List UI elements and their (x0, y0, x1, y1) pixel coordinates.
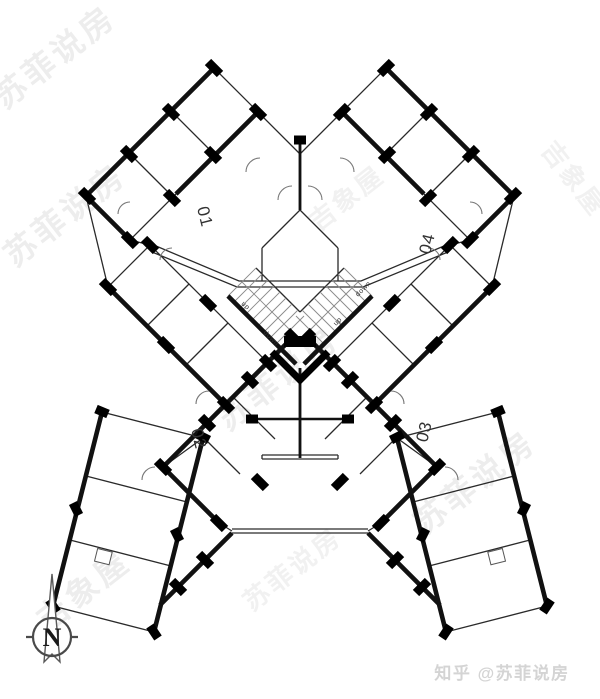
floorplan-page: 苏菲说房 苏菲说房 吉象屋 苏菲说房 苏菲说房 吉象屋 吉象屋 苏菲说房 (0, 0, 600, 699)
bearing-walls (53, 68, 296, 632)
stair-landing (284, 336, 316, 347)
watermark-brand-alt: 吉象屋 (303, 160, 390, 237)
columns (49, 62, 306, 638)
stair-label-left-down: down (262, 329, 280, 347)
watermark-layer: 苏菲说房 苏菲说房 吉象屋 苏菲说房 苏菲说房 吉象屋 吉象屋 苏菲说房 (0, 0, 600, 638)
attribution-text: 知乎 @苏菲说房 (433, 663, 569, 683)
watermark-brand: 苏菲说房 (0, 156, 133, 273)
watermark-brand: 苏菲说房 (0, 0, 123, 116)
watermark-brand-alt: 吉象屋 (535, 135, 600, 222)
plan-left-half (49, 62, 306, 638)
unit-label-03: 03 (412, 419, 435, 444)
unit-label-01: 01 (193, 204, 216, 229)
compass-north-label: N (43, 623, 62, 652)
watermark-brand: 苏菲说房 (237, 522, 347, 617)
unit-label-04: 04 (415, 231, 438, 256)
floor-plan-svg: 苏菲说房 苏菲说房 吉象屋 苏菲说房 苏菲说房 吉象屋 吉象屋 苏菲说房 (0, 0, 600, 699)
